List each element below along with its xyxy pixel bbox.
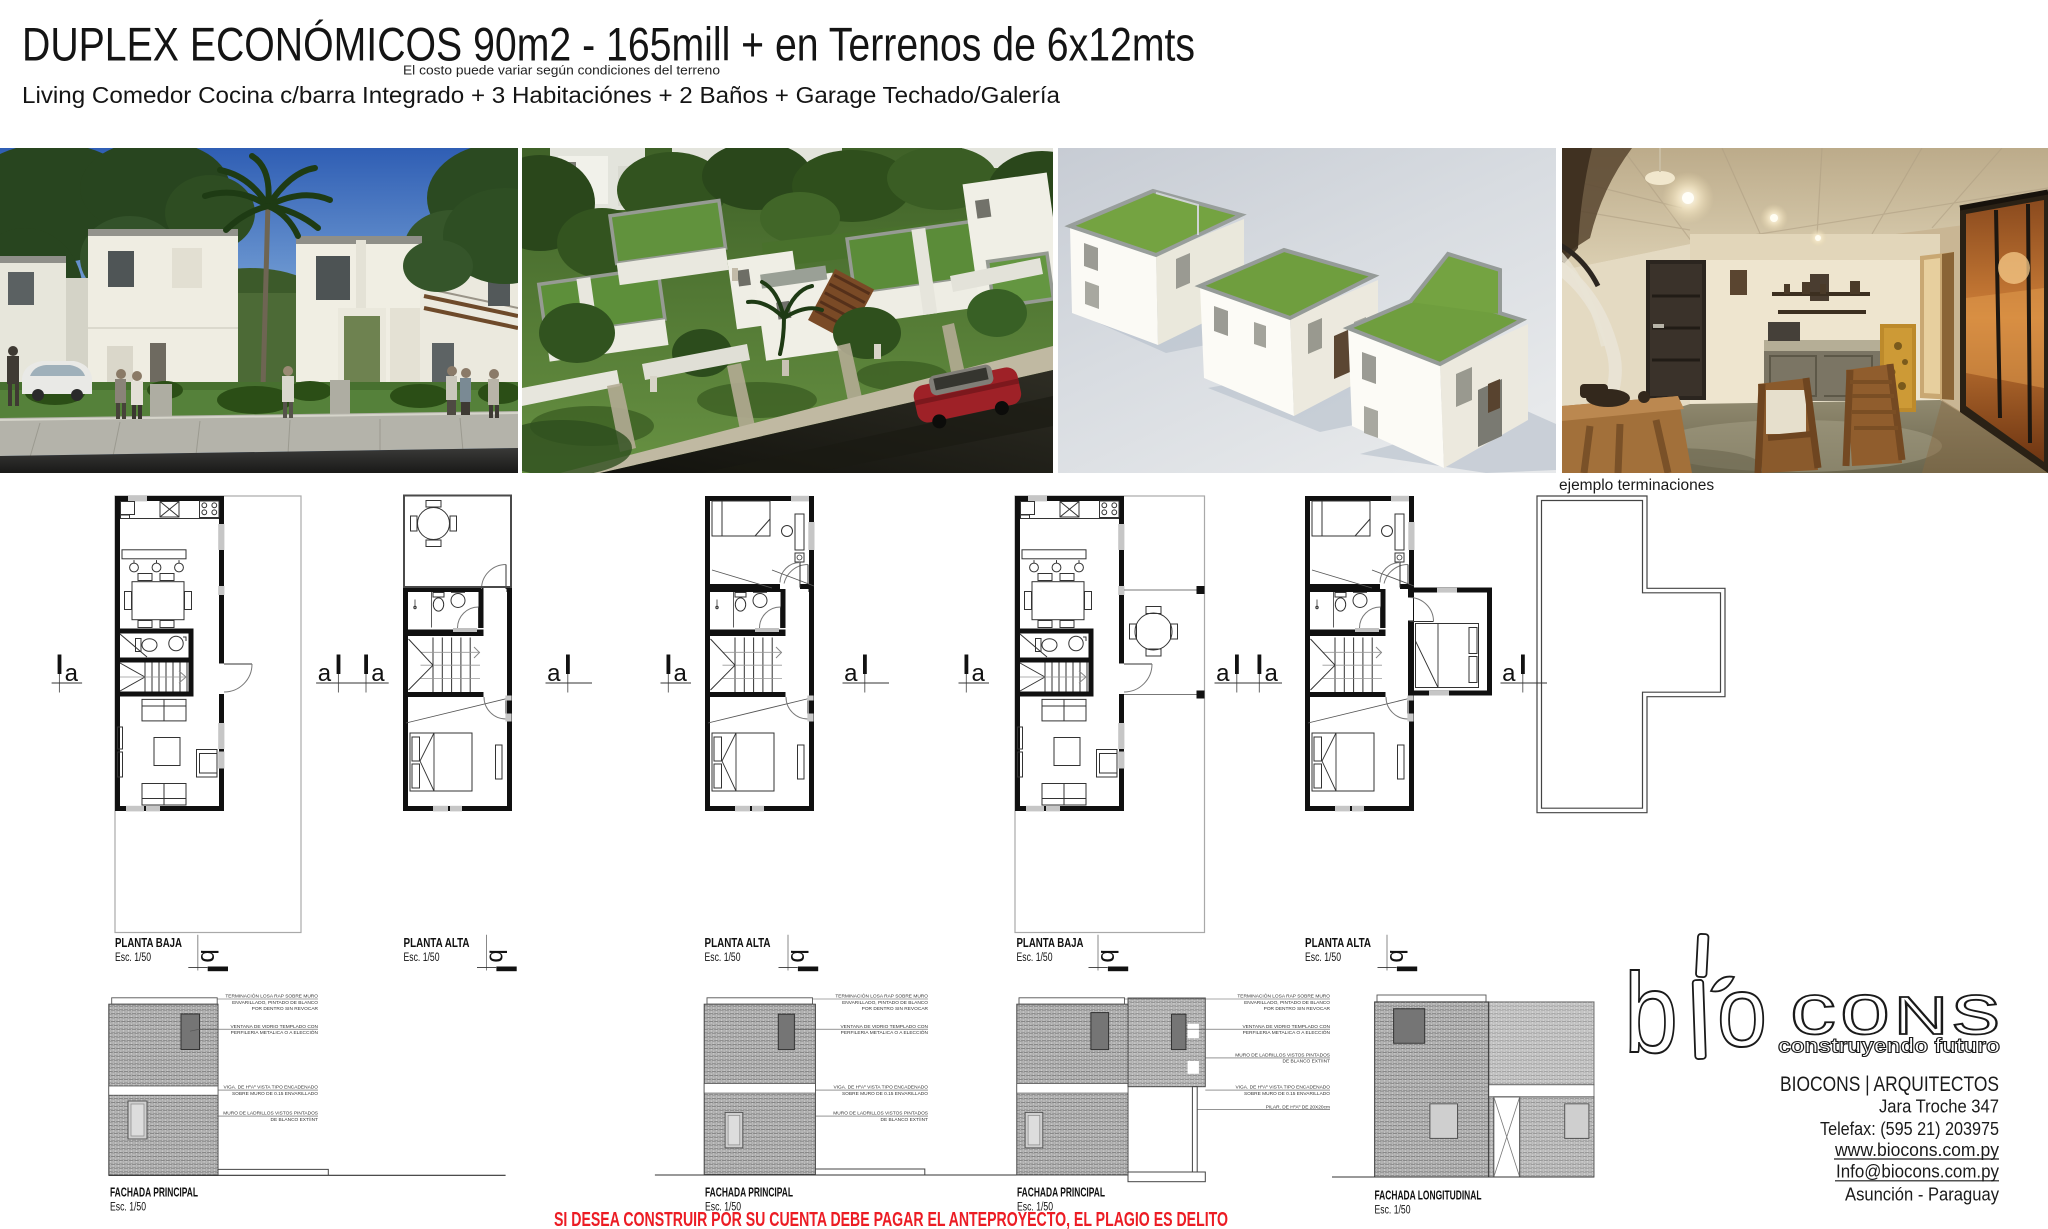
svg-text:PLANTA ALTA: PLANTA ALTA bbox=[705, 936, 771, 950]
svg-text:Jara Troche 347: Jara Troche 347 bbox=[1879, 1096, 1999, 1117]
svg-text:SOBRE MURO DE 0.15 ENVARILLADO: SOBRE MURO DE 0.15 ENVARILLADO bbox=[842, 1091, 928, 1097]
svg-text:Esc. 1/50: Esc. 1/50 bbox=[1017, 952, 1053, 964]
svg-text:BIOCONS | ARQUITECTOS: BIOCONS | ARQUITECTOS bbox=[1780, 1073, 1999, 1096]
svg-text:ENVARILLADO, PINTADO DE BLANCO: ENVARILLADO, PINTADO DE BLANCO bbox=[1244, 1000, 1330, 1006]
svg-text:Info@biocons.com.py: Info@biocons.com.py bbox=[1836, 1160, 2000, 1181]
svg-text:TERMINACIÓN LOSA RAP SOBRE MUR: TERMINACIÓN LOSA RAP SOBRE MURO bbox=[225, 993, 318, 1000]
svg-text:FACHADA LONGITUDINAL: FACHADA LONGITUDINAL bbox=[1375, 1189, 1482, 1203]
svg-text:Esc. 1/50: Esc. 1/50 bbox=[1305, 952, 1341, 964]
svg-text:TERMINACIÓN LOSA RAP SOBRE MUR: TERMINACIÓN LOSA RAP SOBRE MURO bbox=[835, 993, 928, 1000]
svg-text:POR DENTRO SIN REVOCAR: POR DENTRO SIN REVOCAR bbox=[252, 1006, 319, 1012]
svg-text:Asunción - Paraguay: Asunción - Paraguay bbox=[1845, 1184, 2000, 1205]
svg-text:DE BLANCO EXT/INT: DE BLANCO EXT/INT bbox=[881, 1117, 929, 1123]
svg-text:Esc. 1/50: Esc. 1/50 bbox=[115, 952, 151, 964]
svg-text:DE BLANCO EXT/INT: DE BLANCO EXT/INT bbox=[1283, 1059, 1331, 1065]
svg-text:DE BLANCO EXT/INT: DE BLANCO EXT/INT bbox=[271, 1117, 319, 1123]
svg-text:POR DENTRO SIN REVOCAR: POR DENTRO SIN REVOCAR bbox=[1264, 1006, 1331, 1012]
svg-text:b: b bbox=[1624, 950, 1678, 1076]
svg-text:PERFILERIA METALICA O A ELECCI: PERFILERIA METALICA O A ELECCIÓN bbox=[1243, 1029, 1331, 1036]
svg-text:o: o bbox=[1717, 956, 1767, 1068]
svg-text:PLANTA ALTA: PLANTA ALTA bbox=[1305, 936, 1371, 950]
svg-text:Esc. 1/50: Esc. 1/50 bbox=[110, 1202, 146, 1214]
svg-text:construyendo futuro: construyendo futuro bbox=[1778, 1036, 2000, 1058]
svg-text:www.biocons.com.py: www.biocons.com.py bbox=[1834, 1139, 2000, 1160]
svg-text:Esc. 1/50: Esc. 1/50 bbox=[1375, 1205, 1411, 1217]
svg-text:Telefax: (595 21) 203975: Telefax: (595 21) 203975 bbox=[1820, 1118, 1999, 1139]
svg-text:SOBRE MURO DE 0.15 ENVARILLADO: SOBRE MURO DE 0.15 ENVARILLADO bbox=[232, 1091, 318, 1097]
svg-text:FACHADA PRINCIPAL: FACHADA PRINCIPAL bbox=[110, 1186, 198, 1200]
svg-text:POR DENTRO SIN REVOCAR: POR DENTRO SIN REVOCAR bbox=[862, 1006, 929, 1012]
svg-text:El costo puede variar según co: El costo puede variar según condiciones … bbox=[403, 63, 720, 78]
svg-text:PLANTA BAJA: PLANTA BAJA bbox=[1017, 936, 1084, 950]
svg-text:PERFILERIA METALICA O A ELECCI: PERFILERIA METALICA O A ELECCIÓN bbox=[231, 1029, 319, 1036]
svg-text:SI DESEA CONSTRUIR POR SU CUEN: SI DESEA CONSTRUIR POR SU CUENTA DEBE PA… bbox=[554, 1208, 1228, 1229]
svg-text:FACHADA PRINCIPAL: FACHADA PRINCIPAL bbox=[1017, 1186, 1105, 1200]
svg-text:PERFILERIA METALICA O A ELECCI: PERFILERIA METALICA O A ELECCIÓN bbox=[841, 1029, 929, 1036]
svg-text:ejemplo terminaciones: ejemplo terminaciones bbox=[1559, 477, 1714, 494]
svg-text:PLANTA BAJA: PLANTA BAJA bbox=[115, 936, 182, 950]
svg-text:ENVARILLADO, PINTADO DE BLANCO: ENVARILLADO, PINTADO DE BLANCO bbox=[232, 1000, 318, 1006]
svg-text:PLANTA ALTA: PLANTA ALTA bbox=[404, 936, 470, 950]
svg-text:ENVARILLADO, PINTADO DE BLANCO: ENVARILLADO, PINTADO DE BLANCO bbox=[842, 1000, 928, 1006]
svg-text:Esc. 1/50: Esc. 1/50 bbox=[705, 952, 741, 964]
svg-text:SOBRE MURO DE 0.15 ENVARILLADO: SOBRE MURO DE 0.15 ENVARILLADO bbox=[1244, 1091, 1330, 1097]
svg-text:Living Comedor Cocina c/barra: Living Comedor Cocina c/barra Integrado … bbox=[22, 82, 1061, 108]
svg-text:Esc. 1/50: Esc. 1/50 bbox=[404, 952, 440, 964]
svg-text:FACHADA PRINCIPAL: FACHADA PRINCIPAL bbox=[705, 1186, 793, 1200]
svg-text:TERMINACIÓN LOSA RAP SOBRE MUR: TERMINACIÓN LOSA RAP SOBRE MURO bbox=[1237, 993, 1330, 1000]
